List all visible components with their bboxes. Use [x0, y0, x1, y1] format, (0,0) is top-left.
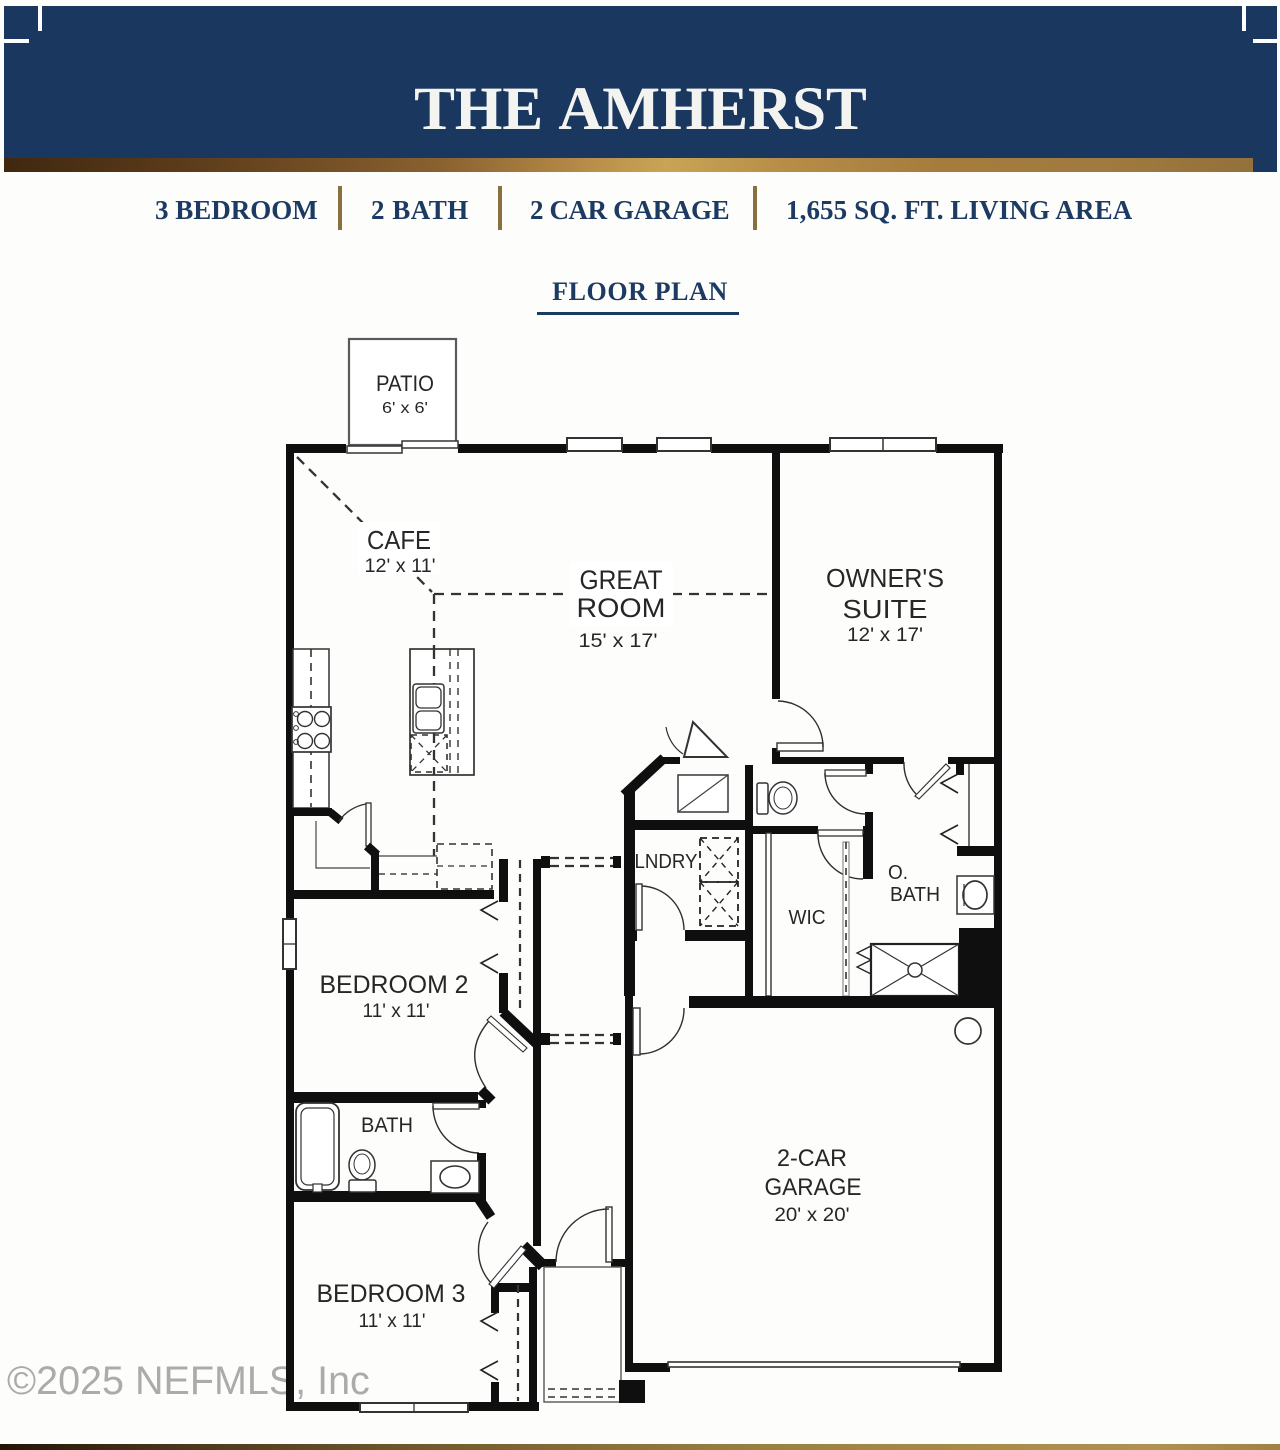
svg-text:15' x 17': 15' x 17' — [579, 631, 658, 652]
svg-text:20' x 20': 20' x 20' — [775, 1205, 850, 1226]
svg-text:6' x 6': 6' x 6' — [382, 400, 428, 417]
svg-text:WIC: WIC — [789, 907, 826, 929]
svg-text:11' x 11': 11' x 11' — [359, 1311, 426, 1332]
svg-text:BEDROOM 2: BEDROOM 2 — [320, 971, 469, 999]
svg-text:GARAGE: GARAGE — [765, 1174, 862, 1201]
svg-text:BEDROOM 3: BEDROOM 3 — [317, 1280, 466, 1308]
svg-text:GREAT: GREAT — [580, 565, 663, 595]
svg-text:CAFE: CAFE — [367, 525, 431, 555]
svg-text:12' x 11': 12' x 11' — [365, 556, 436, 577]
svg-text:BATH: BATH — [361, 1114, 413, 1137]
svg-text:OWNER'S: OWNER'S — [826, 563, 944, 593]
svg-text:BATH: BATH — [890, 884, 940, 906]
svg-text:SUITE: SUITE — [843, 594, 928, 624]
svg-text:12' x 17': 12' x 17' — [847, 625, 923, 646]
svg-text:LNDRY: LNDRY — [635, 851, 698, 873]
svg-text:ROOM: ROOM — [577, 593, 666, 623]
svg-text:11' x 11': 11' x 11' — [363, 1001, 430, 1022]
svg-text:2-CAR: 2-CAR — [777, 1145, 847, 1172]
svg-text:PATIO: PATIO — [376, 371, 434, 396]
svg-text:O.: O. — [888, 862, 908, 884]
